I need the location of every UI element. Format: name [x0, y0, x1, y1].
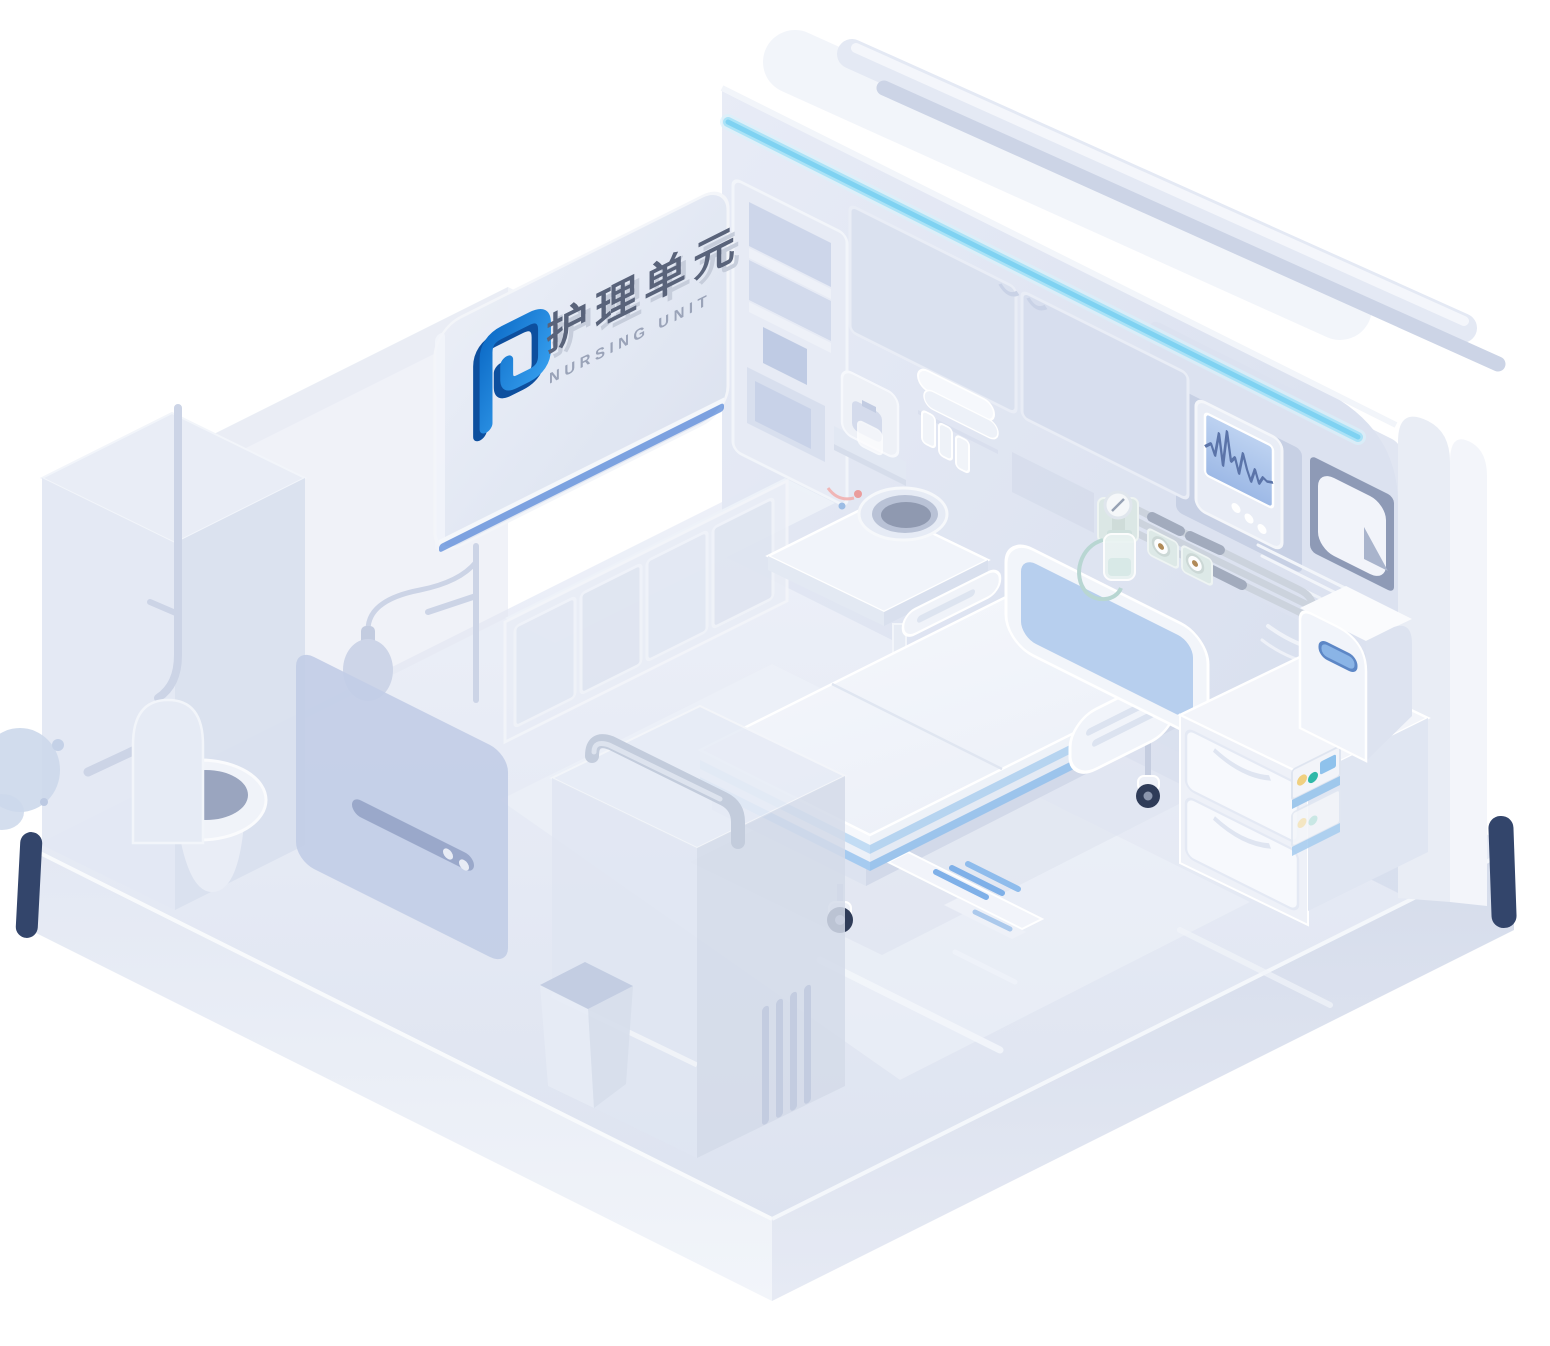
navy-accent-right	[1488, 816, 1517, 929]
nursing-unit-illustration: 护理单元 护理单元 NURSING UNIT	[0, 0, 1550, 1346]
bottle-water	[1108, 558, 1131, 576]
wall-edge-band-outer	[1450, 439, 1487, 906]
cup	[939, 422, 952, 461]
sink-basin-deep	[881, 502, 931, 528]
trash-bin	[540, 962, 633, 1108]
tube-blue-dot	[839, 503, 846, 510]
board-edge-highlight	[435, 331, 445, 552]
sign-board: 护理单元 护理单元 NURSING UNIT	[435, 184, 747, 558]
tube-red-dot	[854, 490, 862, 498]
shelf-unit	[733, 178, 847, 507]
cup	[922, 410, 935, 449]
toilet-lid	[133, 700, 203, 843]
cup	[956, 435, 969, 473]
